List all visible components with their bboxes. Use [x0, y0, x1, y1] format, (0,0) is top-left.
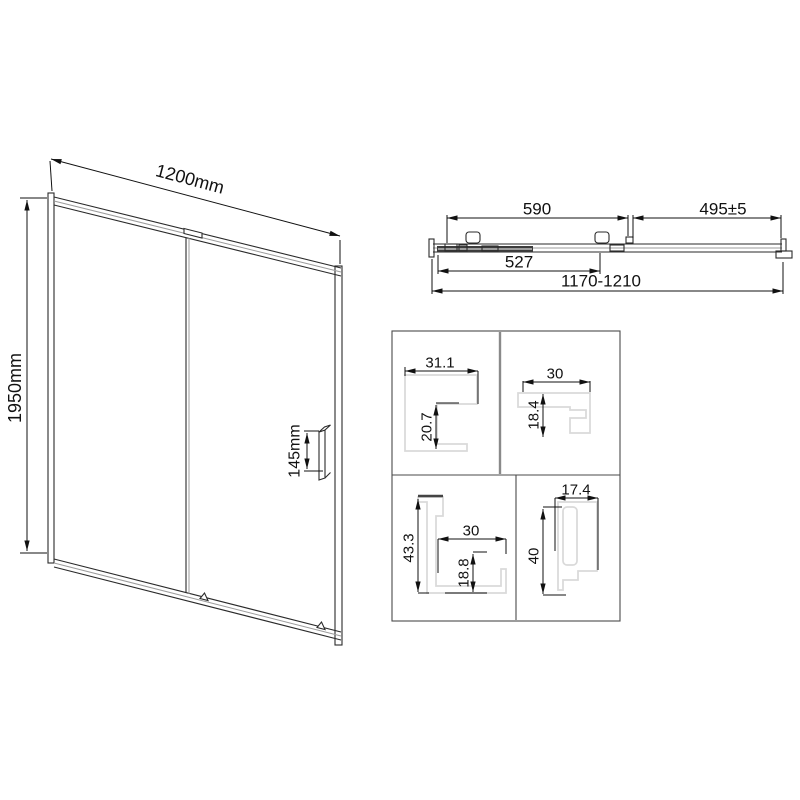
handle-height-label: 145mm — [287, 424, 304, 477]
drawing-canvas: 1200mm 1950mm 145mm — [0, 0, 800, 800]
door-height-label: 1950mm — [5, 353, 25, 423]
dim-overall-range: 1170-1210 — [432, 259, 783, 294]
dim-adjust-range: 495±5 — [633, 200, 781, 239]
bottom-clip-left — [200, 593, 208, 601]
p2-height-label: 18.4 — [526, 400, 543, 429]
track-assembly — [429, 232, 792, 258]
profile-panel-bottom-right: 17.4 40 — [526, 482, 599, 596]
adjust-range-label: 495±5 — [699, 200, 746, 219]
left-wall-profile — [48, 193, 54, 563]
track-right-cap — [781, 239, 786, 251]
door-handle — [319, 425, 331, 480]
glass-width-label: 590 — [523, 200, 551, 219]
profile-panel-top-left: 31.1 20.7 — [405, 355, 478, 452]
p1-width-label: 31.1 — [425, 355, 454, 372]
p2-width-label: 30 — [547, 366, 564, 383]
dim-door-height: 1950mm — [5, 198, 47, 553]
right-wall-profile — [335, 266, 342, 645]
top-view: 590 495±5 527 1170-1210 — [429, 200, 792, 295]
overall-range-label: 1170-1210 — [561, 272, 641, 291]
profile-panel-top-right: 30 18.4 — [518, 366, 590, 438]
p4-width-label: 17.4 — [561, 482, 590, 499]
p3-inner-height-label: 18.8 — [456, 558, 473, 587]
p3-width-label: 30 — [463, 523, 480, 540]
shower-door-technical-drawing: 1200mm 1950mm 145mm — [0, 0, 800, 800]
dim-handle-height: 145mm — [287, 424, 324, 477]
door-width-label: 1200mm — [154, 160, 227, 197]
profile-grid: 31.1 20.7 30 18.4 43.3 30 — [392, 331, 620, 621]
front-view: 1200mm 1950mm 145mm — [5, 159, 342, 645]
dim-door-width: 1200mm — [50, 159, 340, 264]
roller-left — [466, 232, 480, 243]
roller-right — [595, 232, 609, 243]
profile-panel-bottom-left: 43.3 30 18.8 — [401, 496, 507, 593]
p4-height-label: 40 — [526, 548, 543, 565]
panel-width-label: 527 — [505, 253, 533, 272]
p1-height-label: 20.7 — [419, 412, 436, 441]
p3-height-label: 43.3 — [401, 533, 418, 562]
door-frame — [48, 193, 342, 645]
roller-bracket — [184, 229, 202, 239]
bottom-clip-right — [317, 622, 325, 630]
